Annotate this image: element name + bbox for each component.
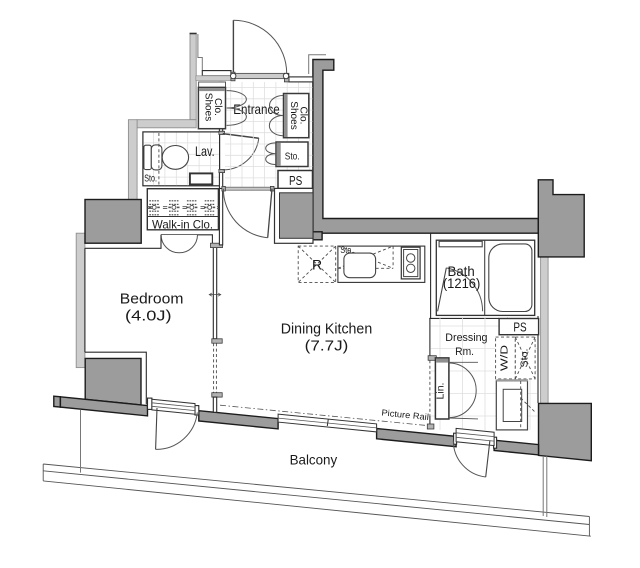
svg-text:Lav.: Lav. (195, 143, 215, 159)
svg-text:(4.0J): (4.0J) (125, 308, 172, 325)
svg-text:Dining Kitchen: Dining Kitchen (281, 321, 372, 337)
svg-text:(7.7J): (7.7J) (305, 338, 349, 354)
svg-text:W/D: W/D (499, 344, 511, 371)
svg-text:Sto.: Sto. (519, 349, 531, 368)
svg-text:Sto.: Sto. (144, 173, 157, 185)
svg-text:Clo.: Clo. (298, 107, 309, 125)
svg-text:Rm.: Rm. (455, 346, 474, 358)
svg-text:Walk-in Clo.: Walk-in Clo. (152, 217, 213, 231)
svg-text:Shoes: Shoes (202, 93, 213, 122)
svg-text:Sto.: Sto. (285, 151, 300, 162)
svg-text:PS: PS (513, 321, 526, 335)
svg-text:Shoes: Shoes (288, 101, 299, 130)
svg-text:Clo.: Clo. (212, 98, 223, 116)
svg-text:Dressing: Dressing (445, 332, 487, 344)
svg-text:PS: PS (289, 174, 302, 188)
svg-text:Lin.: Lin. (434, 383, 446, 400)
svg-text:Balcony: Balcony (290, 451, 338, 467)
svg-text:Entrance: Entrance (233, 101, 280, 117)
svg-text:Bedroom: Bedroom (120, 290, 184, 307)
svg-text:R: R (312, 257, 322, 273)
svg-text:(1216): (1216) (443, 276, 481, 291)
